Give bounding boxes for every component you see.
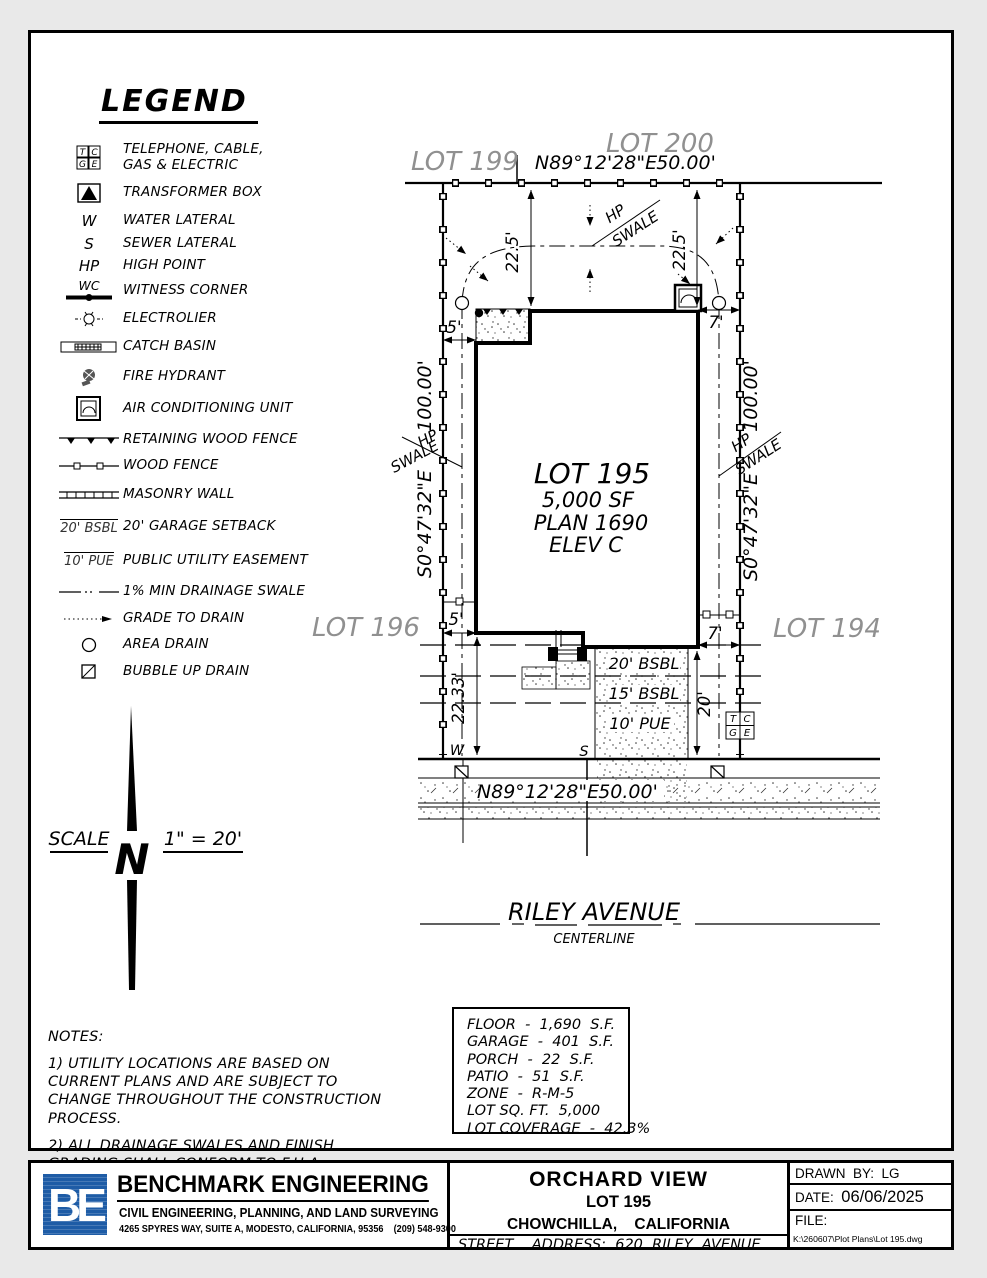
lot-coverage: LOT COVERAGE - 42.3% (467, 1121, 628, 1138)
svg-text:G: G (79, 160, 86, 170)
project-location: CHOWCHILLA, CALIFORNIA (450, 1216, 787, 1234)
legend-item-high-point: HP HIGH POINT (55, 254, 355, 277)
north-arrow: N (114, 706, 149, 990)
legend-item-retaining-fence: RETAINING WOOD FENCE (55, 426, 355, 453)
legend: LEGEND T C G E TELEPHONE, CABLE, GAS & E… (55, 84, 355, 685)
company-name: BENCHMARK ENGINEERING (117, 1171, 429, 1202)
bsbl-symbol: 20' BSBL (55, 519, 123, 536)
street-name: RILEY AVENUE (508, 898, 681, 926)
svg-text:E: E (92, 160, 98, 170)
dim-rear-right: 22.5' (670, 229, 689, 270)
masonry-wall-icon (55, 490, 123, 500)
wood-fence-icon (55, 461, 123, 471)
dim-front-setback: 22.33' (449, 672, 468, 724)
legend-item-water: W WATER LATERAL (55, 208, 355, 233)
dim-side-left-top: 5' (446, 318, 461, 337)
lot-area: 5,000 SF (542, 488, 635, 512)
legend-item-masonry: MASONRY WALL (55, 479, 355, 510)
drawn-by-row: DRAWN BY: LG (790, 1163, 951, 1185)
lot-sqft: LOT SQ. FT. 5,000 (467, 1103, 628, 1120)
patio-area: PATIO - 51 S.F. (467, 1069, 628, 1086)
tcge-icon: T C G E (55, 145, 123, 171)
grade-to-drain-icon (55, 614, 123, 624)
legend-item-area-drain: AREA DRAIN (55, 631, 355, 658)
bearing-side-right: S0°47'32"E (740, 473, 762, 581)
sewer-lateral-label: S (579, 744, 588, 760)
water-lateral-symbol: W (55, 212, 123, 230)
bsbl20-label: 20' BSBL (609, 654, 680, 673)
pue10-label: 10' PUE (609, 714, 671, 733)
bearing-rear-dist: 50.00' (656, 152, 716, 174)
bubble-up-drain-icon (55, 662, 123, 682)
high-point-symbol: HP (55, 257, 123, 275)
catch-basin-icon (55, 340, 123, 354)
garage-area: GARAGE - 401 S.F. (467, 1034, 628, 1051)
svg-text:T: T (730, 714, 737, 725)
walkway (556, 661, 590, 689)
legend-item-ac-unit: AIR CONDITIONING UNIT (55, 392, 355, 426)
witness-corner-right (711, 766, 724, 778)
file-row: FILE: K:\260607\Plot Plans\Lot 195.dwg (790, 1211, 951, 1247)
file-path: K:\260607\Plot Plans\Lot 195.dwg (793, 1234, 922, 1244)
dim-side-right-top: 7' (708, 313, 723, 332)
plot-plan-sheet: 20' BSBL 15' BSBL 10' PUE (0, 0, 987, 1278)
bearing-front-dist: 50.00' (598, 781, 658, 803)
area-drain-icon (55, 636, 123, 654)
file-label: FILE: (795, 1213, 827, 1228)
witness-corner-left (455, 766, 468, 778)
legend-item-garage-setback: 20' BSBL 20' GARAGE SETBACK (55, 510, 355, 544)
legend-title: LEGEND (99, 84, 258, 124)
legend-item-witness-corner: WC WITNESS CORNER (55, 277, 355, 305)
notes-title: NOTES: (48, 1028, 396, 1046)
ac-unit-icon (55, 396, 123, 422)
zone: ZONE - R-M-5 (467, 1086, 628, 1103)
dim-rear-left: 22.5' (503, 231, 522, 272)
legend-item-grade-to-drain: GRADE TO DRAIN (55, 606, 355, 631)
dim-side-left-bottom: 5' (448, 610, 463, 629)
area-drain-right (713, 297, 726, 310)
svg-text:G: G (729, 728, 737, 739)
lot-plan: PLAN 1690 (534, 511, 649, 535)
sewer-lateral-symbol: S (55, 235, 123, 253)
tcge-box: T C G E (726, 712, 754, 739)
dist-side-left: 100.00' (414, 360, 436, 432)
bsbl15-label: 15' BSBL (609, 684, 680, 703)
legend-item-sewer: S SEWER LATERAL (55, 233, 355, 254)
svg-text:C: C (91, 148, 98, 158)
date-row: DATE: 06/06/2025 (790, 1185, 951, 1211)
legend-item-transformer: TRANSFORMER BOX (55, 178, 355, 208)
porch-area: PORCH - 22 S.F. (467, 1052, 628, 1069)
scale-value: 1" = 20' (164, 828, 242, 850)
legend-item-electrolier: ELECTROLIER (55, 305, 355, 332)
scale-label: SCALE (49, 828, 110, 850)
company-tagline: CIVIL ENGINEERING, PLANNING, AND LAND SU… (119, 1206, 439, 1220)
retaining-wood-fence-icon (55, 435, 123, 445)
electrolier-icon (55, 308, 123, 330)
lot-194-label: LOT 194 (773, 614, 881, 644)
walkway-side (522, 667, 556, 689)
legend-item-wood-fence: WOOD FENCE (55, 453, 355, 479)
setback-labels: 20' BSBL 15' BSBL 10' PUE (606, 654, 680, 733)
dim-driveway: 20' (695, 691, 714, 717)
grade-to-drain-arrows (446, 205, 733, 292)
porch (548, 647, 587, 661)
svg-text:E: E (744, 728, 751, 739)
bearing-side-left: S0°47'32"E (414, 470, 436, 578)
patio-corner-drain (475, 309, 483, 317)
project-title: ORCHARD VIEW (450, 1168, 787, 1192)
pue-symbol: 10' PUE (55, 552, 123, 569)
svg-text:C: C (744, 714, 751, 725)
legend-item-pue: 10' PUE PUBLIC UTILITY EASEMENT (55, 544, 355, 577)
fire-hydrant-icon (55, 367, 123, 387)
street-centerline-label: CENTERLINE (553, 932, 635, 947)
legend-item-fire-hydrant: FIRE HYDRANT (55, 361, 355, 392)
lot-199-label: LOT 199 (411, 147, 519, 177)
company-address: 4265 SPYRES WAY, SUITE A, MODESTO, CALIF… (119, 1224, 456, 1235)
north-letter: N (114, 835, 149, 884)
meta-block: DRAWN BY: LG DATE: 06/06/2025 FILE: K:\2… (790, 1163, 951, 1247)
witness-corner-icon: WC (55, 280, 123, 302)
dim-side-right-bottom: 7' (707, 624, 722, 643)
project-block: ORCHARD VIEW LOT 195 CHOWCHILLA, CALIFOR… (450, 1163, 790, 1247)
lot-elev: ELEV C (549, 533, 623, 557)
water-lateral-label: W (450, 743, 465, 759)
legend-item-tcge: T C G E TELEPHONE, CABLE, GAS & ELECTRIC (55, 138, 355, 178)
transformer-box-icon (55, 183, 123, 203)
floor-area: FLOOR - 1,690 S.F. (467, 1017, 628, 1034)
legend-item-catch-basin: CATCH BASIN (55, 332, 355, 361)
legend-item-swale: 1% MIN DRAINAGE SWALE (55, 577, 355, 606)
street-address: STREET ADDRESS: 620 RILEY AVENUE (450, 1234, 787, 1254)
area-drain-left (456, 297, 469, 310)
project-lot: LOT 195 (450, 1193, 787, 1212)
company-block: BE BENCHMARK ENGINEERING CIVIL ENGINEERI… (31, 1163, 450, 1247)
bearing-rear: N89°12'28"E (535, 152, 657, 174)
bearing-front: N89°12'28"E (477, 781, 599, 803)
company-logo: BE (43, 1174, 107, 1235)
lot-number: LOT 195 (534, 457, 650, 490)
legend-item-bubble-up: BUBBLE UP DRAIN (55, 658, 355, 685)
dist-side-right: 100.00' (740, 360, 762, 432)
drainage-swale-icon (55, 588, 123, 596)
site-data-box: FLOOR - 1,690 S.F. GARAGE - 401 S.F. POR… (452, 1007, 630, 1134)
title-block: BE BENCHMARK ENGINEERING CIVIL ENGINEERI… (28, 1160, 954, 1250)
note-1: 1) UTILITY LOCATIONS ARE BASED ON CURREN… (48, 1055, 396, 1128)
